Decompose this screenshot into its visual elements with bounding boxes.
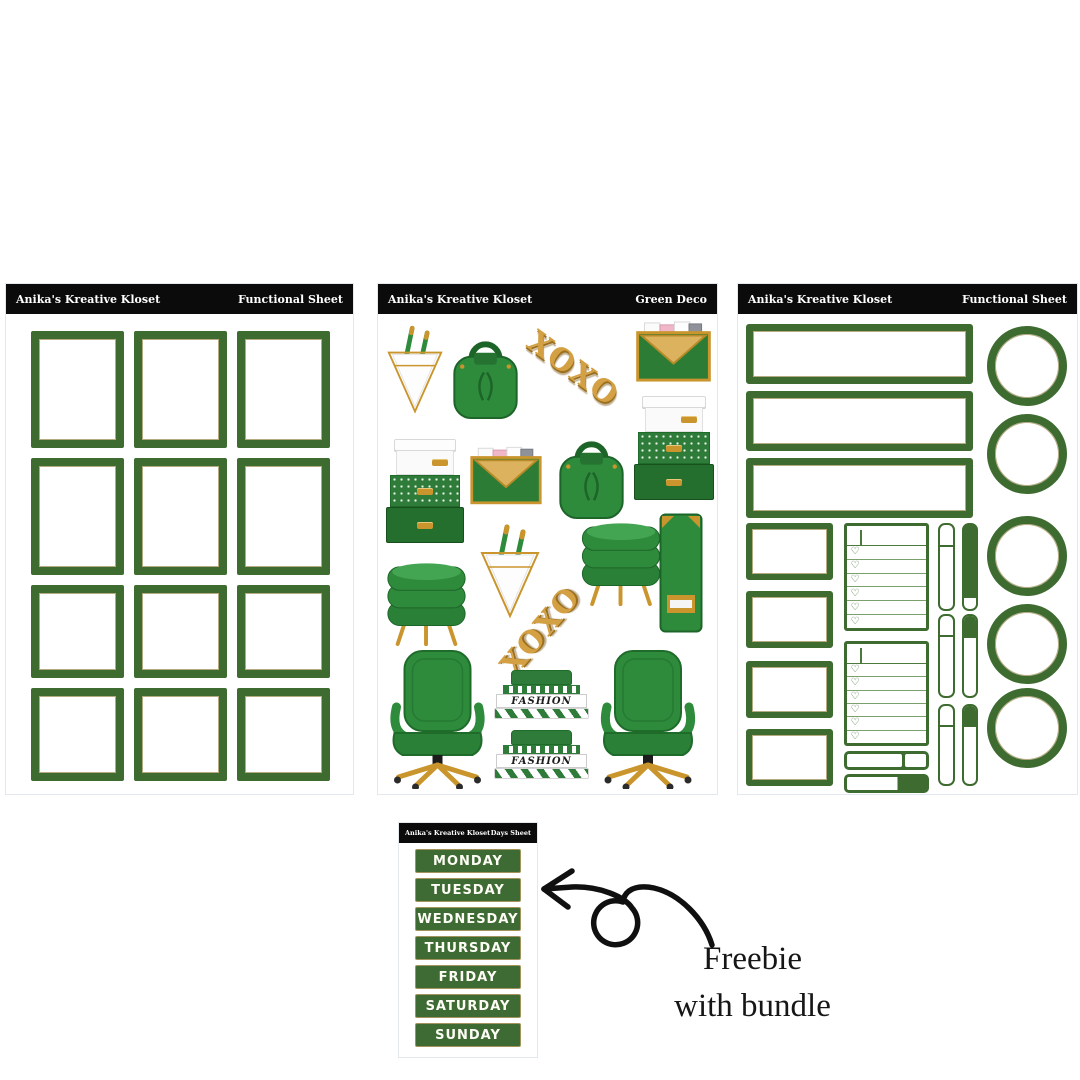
checklist-row: ♡: [847, 601, 926, 615]
full-box-sticker: [134, 331, 227, 448]
checklist-row: ♡: [847, 664, 926, 677]
checklist-row: ♡: [847, 731, 926, 743]
heart-checkbox-icon: ♡: [847, 547, 863, 557]
half-box-sticker: [746, 591, 833, 648]
fashion-label: FASHION: [511, 696, 571, 707]
ottoman-pouf-sticker: [579, 519, 663, 607]
bucket-bag-sticker: [448, 329, 523, 423]
split-bar-sticker: [844, 751, 929, 770]
checklist-row: ♡: [847, 587, 926, 601]
full-box-sticker: [31, 458, 124, 575]
envelope-box-sticker: [469, 444, 543, 508]
sheet-header: Anika's Kreative Kloset Functional Sheet: [6, 284, 353, 314]
pencil-holder-sticker: [386, 319, 444, 416]
functional-sheet-right: Anika's Kreative Kloset Functional Sheet…: [737, 283, 1078, 795]
ottoman-pouf-icon: [384, 559, 469, 647]
heart-checkbox-icon: ♡: [847, 692, 863, 702]
thin-strip-sticker: [938, 614, 955, 698]
freebie-note: Freebie with bundle: [635, 936, 870, 1030]
circle-sticker: [987, 604, 1067, 684]
bookmark-icon: [659, 513, 703, 633]
gold-handle-icon: [681, 416, 697, 423]
full-box-sticker: [237, 688, 330, 781]
wide-box-sticker: [746, 458, 973, 518]
heart-checkbox-icon: ♡: [847, 665, 863, 675]
checklist-row: ♡: [847, 704, 926, 717]
checklist-header: [847, 526, 926, 546]
book-spine: [494, 708, 589, 719]
brand-label: Anika's Kreative Kloset: [748, 293, 892, 306]
freebie-line1: Freebie: [635, 936, 870, 983]
day-sticker-wednesday: WEDNESDAY: [415, 907, 521, 931]
bucket-bag-icon: [448, 329, 523, 423]
pencil-holder-sticker: [479, 519, 541, 619]
full-box-sticker: [134, 458, 227, 575]
book-spine: [511, 670, 572, 685]
white-box: [394, 439, 456, 475]
office-chair-sticker: [593, 649, 703, 789]
book-spine: [503, 685, 581, 694]
day-sticker-saturday: SATURDAY: [415, 994, 521, 1018]
checklist-row: ♡: [847, 717, 926, 730]
polka-dot-box: [638, 432, 710, 464]
bar-cell: [847, 754, 902, 767]
pencil-holder-icon: [479, 519, 541, 619]
brand-label: Anika's Kreative Kloset: [405, 829, 490, 837]
box-lid: [642, 396, 706, 408]
gold-handle-icon: [417, 522, 433, 529]
heart-checkbox-icon: ♡: [847, 705, 863, 715]
circle-sticker: [987, 688, 1067, 768]
green-box: [386, 507, 464, 543]
gold-handle-icon: [432, 459, 448, 466]
heart-checklist-sticker: ♡ ♡ ♡ ♡ ♡ ♡: [844, 523, 929, 631]
heart-checkbox-icon: ♡: [847, 589, 863, 599]
checklist-row: ♡: [847, 615, 926, 628]
thin-strip-sticker: [938, 704, 955, 786]
sheet-title: Functional Sheet: [962, 293, 1067, 306]
gold-handle-icon: [666, 445, 682, 452]
heart-checklist-sticker: ♡ ♡ ♡ ♡ ♡ ♡: [844, 641, 929, 746]
brand-label: Anika's Kreative Kloset: [16, 293, 160, 306]
heart-checkbox-icon: ♡: [847, 678, 863, 688]
full-box-sticker: [237, 585, 330, 678]
full-box-sticker: [31, 585, 124, 678]
box-lid: [394, 439, 456, 451]
full-box-sticker: [237, 331, 330, 448]
listing-image: Anika's Kreative Kloset Functional Sheet…: [0, 0, 1080, 1080]
full-box-sticker: [31, 688, 124, 781]
wide-box-sticker: [746, 391, 973, 451]
bucket-bag-icon: [554, 429, 629, 523]
xoxo-text: XOXO: [520, 324, 626, 414]
office-chair-icon: [382, 649, 493, 789]
gold-handle-icon: [666, 479, 682, 486]
thin-strip-sticker: [938, 523, 955, 611]
full-box-sticker: [134, 688, 227, 781]
envelope-box-icon: [634, 321, 713, 383]
deco-sheet: Anika's Kreative Kloset Green Deco: [377, 283, 718, 795]
box-body: [645, 408, 704, 432]
office-chair-icon: [593, 649, 703, 789]
full-box-sticker: [134, 585, 227, 678]
envelope-box-sticker: [634, 321, 713, 383]
day-sticker-friday: FRIDAY: [415, 965, 521, 989]
book-spine: [503, 745, 581, 754]
circle-sticker: [987, 414, 1067, 494]
sheet-title: Green Deco: [635, 293, 707, 306]
thin-strip-sticker: [962, 523, 978, 611]
circle-sticker: [987, 326, 1067, 406]
sheet-header: Anika's Kreative Kloset Functional Sheet: [738, 284, 1077, 314]
half-box-sticker: [746, 523, 833, 580]
book-spine: [511, 730, 572, 745]
fill-bar-sticker: [844, 774, 929, 793]
thin-strip-sticker: [962, 704, 978, 786]
wide-box-sticker: [746, 324, 973, 384]
checklist-row: ♡: [847, 574, 926, 588]
heart-checkbox-icon: ♡: [847, 603, 863, 613]
bar-cell: [905, 754, 926, 767]
ottoman-pouf-sticker: [384, 559, 469, 647]
heart-checkbox-icon: ♡: [847, 575, 863, 585]
sheet-title: Functional Sheet: [238, 293, 343, 306]
days-sheet: Anika's Kreative Kloset Days Sheet MONDA…: [398, 822, 538, 1058]
green-box: [634, 464, 714, 500]
box-body: [396, 451, 453, 475]
pencil-holder-icon: [386, 319, 444, 416]
sheet-header: Anika's Kreative Kloset Days Sheet: [399, 823, 537, 843]
bucket-bag-sticker: [554, 429, 629, 523]
checklist-row: ♡: [847, 691, 926, 704]
full-box-sticker: [31, 331, 124, 448]
brand-label: Anika's Kreative Kloset: [388, 293, 532, 306]
heart-checkbox-icon: ♡: [847, 617, 863, 627]
xoxo-word-art: XOXO: [520, 324, 626, 414]
full-box-sticker: [237, 458, 330, 575]
day-sticker-tuesday: TUESDAY: [415, 878, 521, 902]
sheet-header: Anika's Kreative Kloset Green Deco: [378, 284, 717, 314]
circle-sticker: [987, 516, 1067, 596]
day-sticker-sunday: SUNDAY: [415, 1023, 521, 1047]
checklist-row: ♡: [847, 677, 926, 690]
checklist-row: ♡: [847, 546, 926, 560]
office-chair-sticker: [382, 649, 493, 789]
day-sticker-monday: MONDAY: [415, 849, 521, 873]
half-box-sticker: [746, 729, 833, 786]
heart-checkbox-icon: ♡: [847, 718, 863, 728]
functional-sheet-left: Anika's Kreative Kloset Functional Sheet: [5, 283, 354, 795]
checklist-row: ♡: [847, 560, 926, 574]
sheet-title: Days Sheet: [491, 829, 531, 837]
book-spine: FASHION: [496, 694, 586, 708]
day-sticker-column: MONDAY TUESDAY WEDNESDAY THURSDAY FRIDAY…: [399, 849, 537, 1052]
heart-checkbox-icon: ♡: [847, 732, 863, 742]
checklist-header: [847, 644, 926, 664]
heart-checkbox-icon: ♡: [847, 561, 863, 571]
polka-dot-box: [390, 475, 460, 507]
book-spine: [494, 768, 589, 779]
book-spine: FASHION: [496, 754, 586, 768]
bookmark-sticker: [659, 513, 703, 633]
full-box-grid: [31, 331, 330, 781]
fashion-label: FASHION: [511, 756, 571, 767]
white-box: [642, 396, 706, 432]
envelope-box-icon: [469, 444, 543, 508]
ottoman-pouf-icon: [579, 519, 663, 607]
thin-strip-sticker: [962, 614, 978, 698]
day-sticker-thursday: THURSDAY: [415, 936, 521, 960]
half-box-sticker: [746, 661, 833, 718]
gold-handle-icon: [417, 488, 433, 495]
freebie-line2: with bundle: [635, 983, 870, 1030]
